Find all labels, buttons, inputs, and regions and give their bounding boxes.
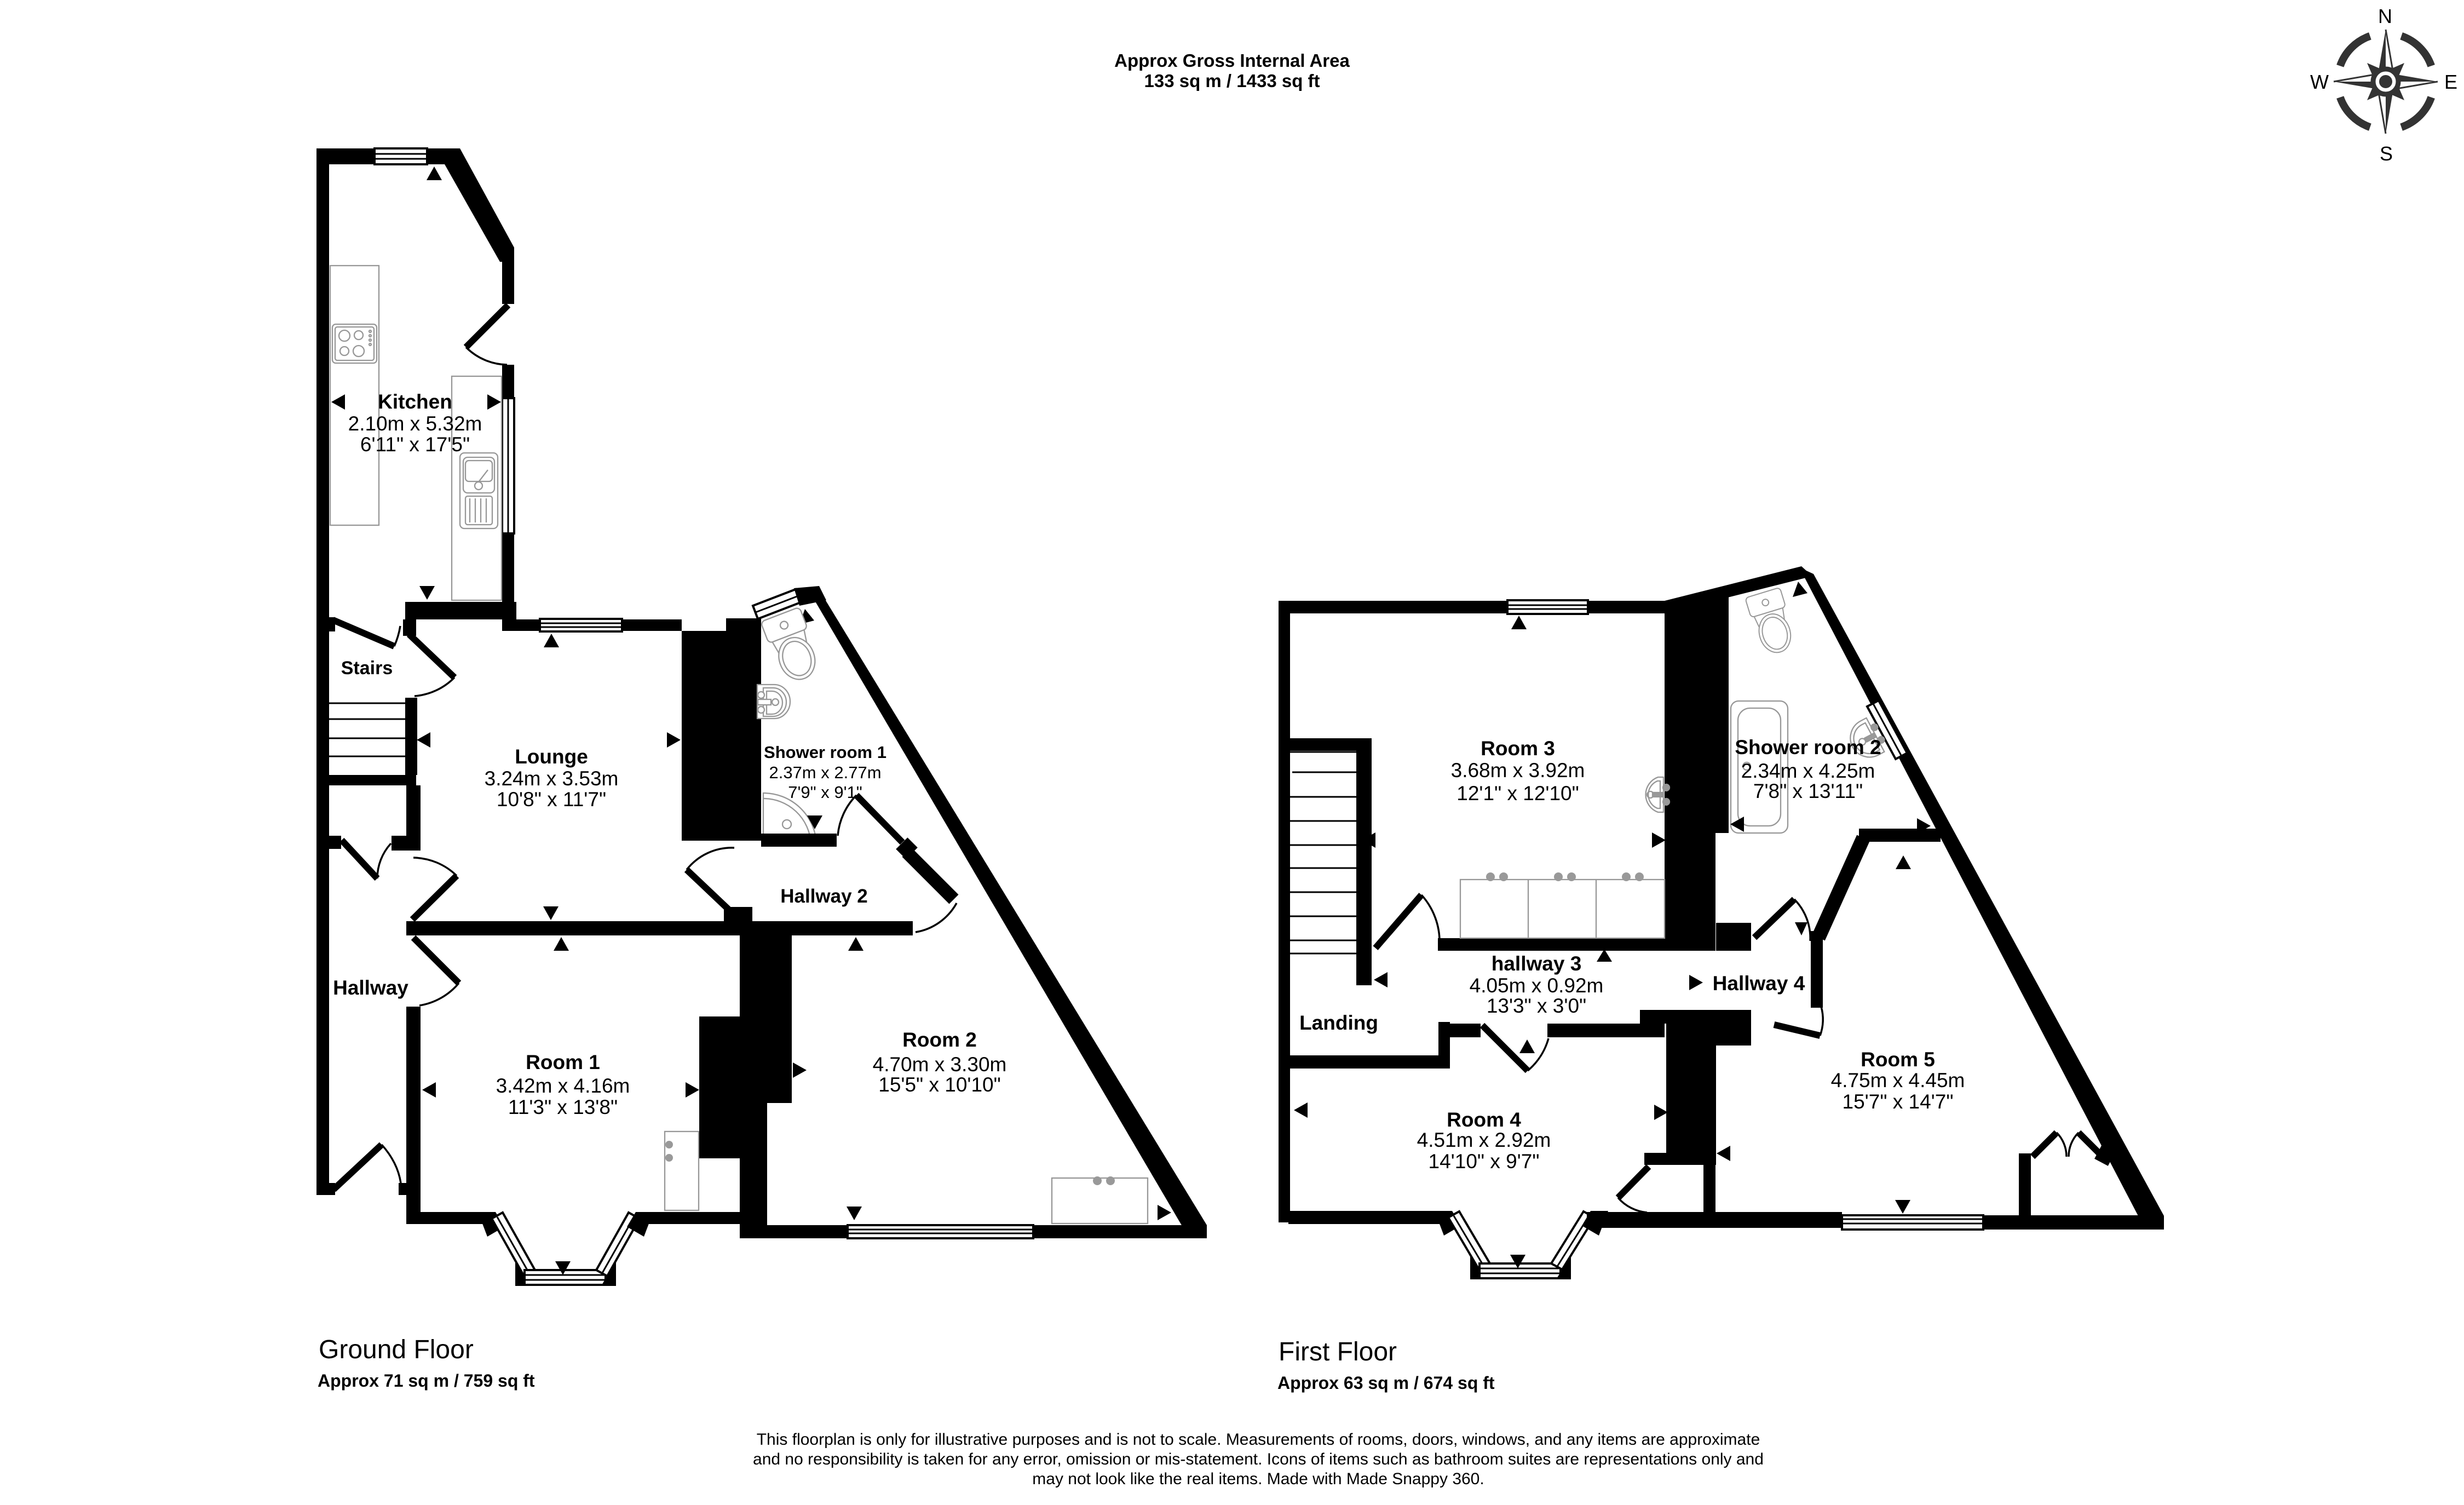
svg-text:Landing: Landing: [1299, 1012, 1378, 1034]
svg-text:10'8" x 11'7": 10'8" x 11'7": [497, 788, 606, 811]
svg-text:Room 1: Room 1: [526, 1051, 600, 1073]
svg-text:Lounge: Lounge: [515, 745, 588, 768]
svg-text:N: N: [2378, 5, 2392, 27]
svg-text:3.24m x 3.53m: 3.24m x 3.53m: [485, 767, 619, 790]
svg-text:and no responsibility is taken: and no responsibility is taken for any e…: [753, 1450, 1764, 1468]
svg-text:13'3" x 3'0": 13'3" x 3'0": [1487, 995, 1586, 1017]
svg-text:This floorplan is only for ill: This floorplan is only for illustrative …: [757, 1431, 1760, 1449]
svg-text:Ground Floor: Ground Floor: [319, 1335, 474, 1364]
svg-text:4.51m x 2.92m: 4.51m x 2.92m: [1417, 1129, 1551, 1151]
svg-text:7'9" x 9'1": 7'9" x 9'1": [788, 783, 862, 802]
svg-text:Shower room 2: Shower room 2: [1735, 736, 1881, 759]
svg-text:Stairs: Stairs: [341, 658, 393, 679]
svg-text:15'5" x 10'10": 15'5" x 10'10": [878, 1073, 1001, 1096]
svg-text:2.10m x 5.32m: 2.10m x 5.32m: [348, 412, 482, 435]
svg-text:3.68m x 3.92m: 3.68m x 3.92m: [1451, 759, 1585, 782]
svg-text:E: E: [2444, 71, 2457, 93]
svg-text:Room 5: Room 5: [1861, 1048, 1935, 1071]
svg-text:11'3" x 13'8": 11'3" x 13'8": [508, 1096, 618, 1118]
svg-text:4.70m x 3.30m: 4.70m x 3.30m: [873, 1053, 1007, 1076]
svg-text:6'11" x 17'5": 6'11" x 17'5": [360, 433, 470, 456]
svg-text:Approx 63 sq m / 674 sq ft: Approx 63 sq m / 674 sq ft: [1277, 1373, 1495, 1393]
svg-text:Hallway 4: Hallway 4: [1713, 972, 1805, 995]
svg-text:15'7" x 14'7": 15'7" x 14'7": [1843, 1090, 1954, 1113]
svg-text:may not look like the real ite: may not look like the real items. Made w…: [1032, 1470, 1484, 1488]
svg-text:Room 3: Room 3: [1481, 737, 1555, 760]
svg-text:7'8" x 13'11": 7'8" x 13'11": [1753, 780, 1863, 802]
svg-text:Room 4: Room 4: [1447, 1108, 1521, 1131]
svg-text:2.34m x 4.25m: 2.34m x 4.25m: [1741, 760, 1875, 782]
svg-text:12'1" x 12'10": 12'1" x 12'10": [1456, 782, 1579, 805]
svg-text:14'10" x 9'7": 14'10" x 9'7": [1429, 1150, 1540, 1173]
svg-text:Hallway: Hallway: [333, 976, 408, 999]
svg-text:Hallway 2: Hallway 2: [780, 886, 868, 907]
svg-text:4.75m x 4.45m: 4.75m x 4.45m: [1831, 1069, 1965, 1092]
svg-text:W: W: [2310, 71, 2329, 93]
svg-text:hallway 3: hallway 3: [1492, 952, 1582, 975]
svg-text:4.05m x 0.92m: 4.05m x 0.92m: [1470, 974, 1604, 997]
svg-text:3.42m x 4.16m: 3.42m x 4.16m: [496, 1075, 630, 1097]
svg-text:Shower room 1: Shower room 1: [764, 743, 886, 762]
svg-text:S: S: [2380, 142, 2393, 165]
svg-text:Room 2: Room 2: [902, 1029, 977, 1051]
svg-text:Approx 71 sq m / 759 sq ft: Approx 71 sq m / 759 sq ft: [318, 1371, 535, 1391]
svg-text:First Floor: First Floor: [1279, 1337, 1397, 1366]
svg-text:2.37m x 2.77m: 2.37m x 2.77m: [769, 763, 881, 782]
svg-text:Kitchen: Kitchen: [378, 390, 452, 413]
svg-text:133 sq m / 1433 sq ft: 133 sq m / 1433 sq ft: [1144, 71, 1320, 91]
svg-text:Approx Gross Internal Area: Approx Gross Internal Area: [1114, 50, 1350, 71]
